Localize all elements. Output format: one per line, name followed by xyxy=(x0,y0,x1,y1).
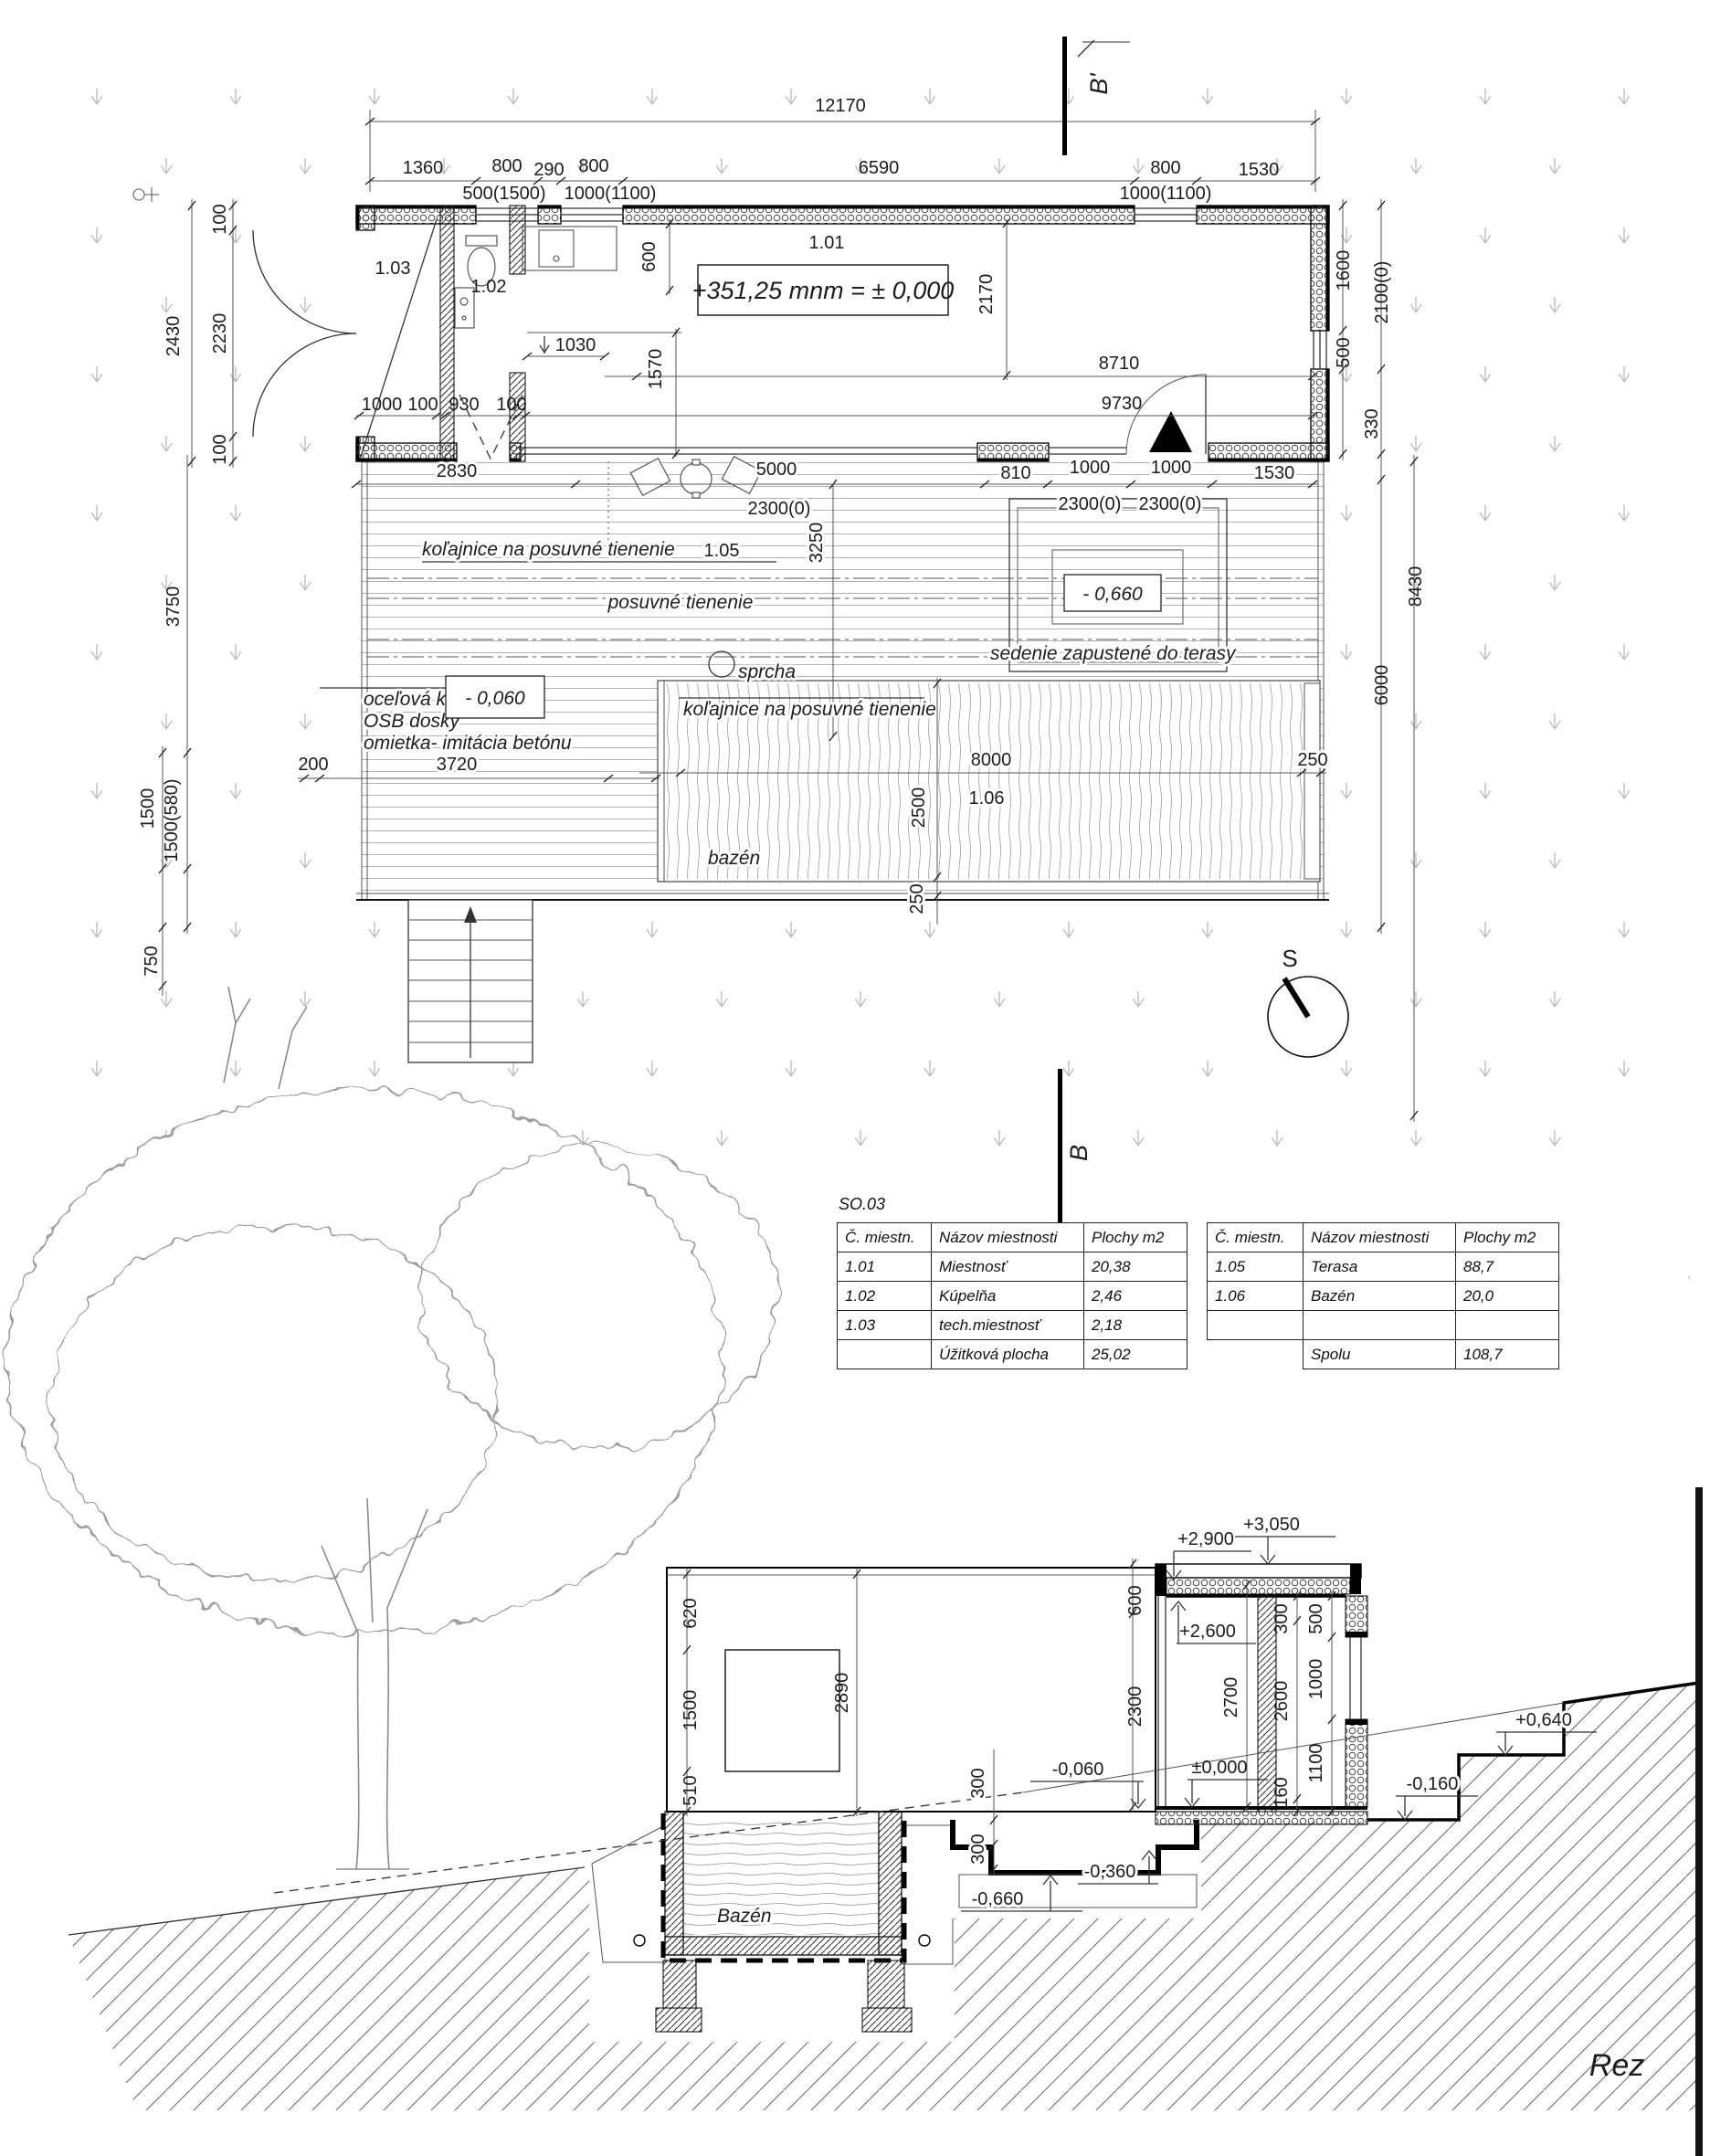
level-box-660: - 0,660 xyxy=(1064,575,1161,611)
dim-window3: 1000(1100) xyxy=(1120,184,1212,204)
lvl-m0360: -0,360 xyxy=(1084,1862,1136,1882)
lvl-2600: +2,600 xyxy=(1179,1622,1236,1642)
cut-label-bottom: B xyxy=(1065,1145,1092,1161)
dim-1000b: 1000 xyxy=(1151,458,1192,478)
room-table-left: Č. miestn. Názov miestnosti Plochy m2 1.… xyxy=(837,1222,1187,1369)
table-row: 1.06 Bazén 20,0 xyxy=(1208,1282,1559,1311)
dim-right-2100: 2100(0) xyxy=(1372,261,1392,324)
dim-left-1500-580: 1500(580) xyxy=(162,778,182,861)
compass-north-label: S xyxy=(1282,945,1297,972)
dim-100b: 100 xyxy=(496,395,526,415)
lvl-m0660: -0,660 xyxy=(972,1889,1024,1909)
dim-right-6000: 6000 xyxy=(1372,665,1392,706)
cell: tech.miestnosť xyxy=(932,1311,1084,1340)
dim-seg6: 800 xyxy=(1150,158,1180,178)
dim-left-2430: 2430 xyxy=(164,316,184,357)
dim-seg1: 1360 xyxy=(403,158,444,178)
sdim-1100: 1100 xyxy=(1306,1743,1326,1782)
dim-left-1500: 1500 xyxy=(138,788,158,830)
cell-total-value: 108,7 xyxy=(1456,1340,1559,1369)
dim-200: 200 xyxy=(298,755,328,775)
cell: 2,18 xyxy=(1084,1311,1187,1340)
architectural-drawing-sheet: 12170 1360 800 290 800 6590 800 1530 500… xyxy=(0,0,1710,2156)
rail-label-2: koľajnice na posuvné tienenie xyxy=(683,699,936,720)
cell: Bazén xyxy=(1304,1282,1456,1311)
cell xyxy=(1208,1311,1304,1340)
cell: Miestnosť xyxy=(932,1252,1084,1282)
table-row-total: Spolu 108,7 xyxy=(1208,1340,1559,1369)
lvl-3050: +3,050 xyxy=(1243,1515,1300,1535)
lvl-m0160: -0,160 xyxy=(1407,1774,1459,1794)
partition-103-102 xyxy=(440,206,454,461)
rail-label-1: koľajnice na posuvné tienenie xyxy=(422,539,675,560)
cell: 1.02 xyxy=(838,1282,932,1311)
table-row: 1.01 Miestnosť 20,38 xyxy=(838,1252,1187,1282)
room-101-label: 1.01 xyxy=(809,233,845,253)
room-105-label: 1.05 xyxy=(704,541,740,561)
sdim-2890: 2890 xyxy=(832,1673,852,1714)
grass-field-right xyxy=(1553,1215,1690,1334)
seating-label: sedenie zapustené do terasy xyxy=(990,643,1237,664)
sdim-2600: 2600 xyxy=(1272,1681,1292,1722)
tree-canopy-fill xyxy=(7,1089,776,1633)
table-row: 1.03 tech.miestnosť 2,18 xyxy=(838,1311,1187,1340)
pool-section: Bazén xyxy=(589,1812,955,2042)
cell xyxy=(1304,1311,1456,1340)
cell xyxy=(838,1340,932,1369)
sdim-1000: 1000 xyxy=(1306,1659,1326,1700)
cell: 1.06 xyxy=(1208,1282,1304,1311)
dim-left-100t: 100 xyxy=(210,204,230,234)
dim-1000a: 1000 xyxy=(1070,458,1111,478)
cell: Úžitková plocha xyxy=(932,1340,1084,1369)
sdim-300a: 300 xyxy=(1272,1603,1292,1633)
dim-3250: 3250 xyxy=(807,523,827,564)
col-header: Č. miestn. xyxy=(838,1223,932,1252)
dim-3720: 3720 xyxy=(437,755,478,775)
cell: 1.05 xyxy=(1208,1252,1304,1282)
dim-100a: 100 xyxy=(407,395,438,415)
dim-9730: 9730 xyxy=(1102,394,1143,414)
dim-2170: 2170 xyxy=(976,274,997,315)
cell-total-label: Spolu xyxy=(1304,1340,1456,1369)
cell: 88,7 xyxy=(1456,1252,1559,1282)
sdim-160: 160 xyxy=(1272,1777,1292,1807)
sdim-500: 500 xyxy=(1306,1603,1326,1633)
lvl-m0060: -0,060 xyxy=(1052,1760,1104,1780)
table-row: 1.05 Terasa 88,7 xyxy=(1208,1252,1559,1282)
table-row xyxy=(1208,1311,1559,1340)
col-header: Názov miestnosti xyxy=(1304,1223,1456,1252)
stairs xyxy=(408,900,533,1062)
sdim-300c: 300 xyxy=(968,1834,988,1864)
dim-2300b: 2300(0) xyxy=(1059,494,1122,514)
dim-seg5: 6590 xyxy=(859,158,900,178)
room-103-label: 1.03 xyxy=(375,259,411,279)
shower-label: sprcha xyxy=(738,661,796,682)
cell: 2,46 xyxy=(1084,1282,1187,1311)
cell-empty xyxy=(1208,1340,1304,1369)
level-box-060: - 0,060 xyxy=(446,676,544,718)
sdim-510: 510 xyxy=(681,1775,701,1805)
dim-seg7: 1530 xyxy=(1239,160,1280,180)
drawing-canvas: 12170 1360 800 290 800 6590 800 1530 500… xyxy=(0,0,1710,2156)
col-header: Plochy m2 xyxy=(1456,1223,1559,1252)
table-row: 1.02 Kúpelňa 2,46 xyxy=(838,1282,1187,1311)
dim-250-right: 250 xyxy=(1297,750,1327,770)
dim-window2: 1000(1100) xyxy=(565,184,657,204)
dim-left-3750: 3750 xyxy=(164,587,184,628)
dim-2500: 2500 xyxy=(909,787,929,829)
dim-right-330: 330 xyxy=(1362,408,1382,439)
cell: 1.03 xyxy=(838,1311,932,1340)
dim-seg2: 800 xyxy=(491,156,522,176)
dim-left-750: 750 xyxy=(142,946,162,976)
table-header-row: Č. miestn. Názov miestnosti Plochy m2 xyxy=(1208,1223,1559,1252)
dim-2300a: 2300(0) xyxy=(748,499,811,519)
sdim-300b: 300 xyxy=(968,1768,988,1798)
cell xyxy=(1456,1311,1559,1340)
cut-label-top: B' xyxy=(1085,73,1113,95)
table-title: SO.03 xyxy=(839,1195,885,1214)
dim-right-500: 500 xyxy=(1334,337,1354,367)
sheet-frame-edge xyxy=(1695,1487,1703,2156)
pool-label: bazén xyxy=(708,848,760,869)
table-row: Úžitková plocha 25,02 xyxy=(838,1340,1187,1369)
lvl-2900: +2,900 xyxy=(1177,1529,1234,1549)
dim-250-bottom: 250 xyxy=(907,883,927,914)
cell: Terasa xyxy=(1304,1252,1456,1282)
sdim-2300: 2300 xyxy=(1125,1686,1145,1728)
cell: 1.01 xyxy=(838,1252,932,1282)
lvl-0000: ±0,000 xyxy=(1191,1758,1247,1778)
dim-right-1600: 1600 xyxy=(1334,250,1354,291)
shading-label: posuvné tienenie xyxy=(607,592,754,613)
dim-2830: 2830 xyxy=(437,461,478,481)
section-title: Rez xyxy=(1589,2048,1644,2083)
dim-2300c: 2300(0) xyxy=(1139,494,1202,514)
building-section xyxy=(1156,1564,1367,1824)
sdim-1500: 1500 xyxy=(681,1690,701,1731)
dim-right-8430: 8430 xyxy=(1406,566,1426,608)
cell: Kúpelňa xyxy=(932,1282,1084,1311)
room-102-label: 1.02 xyxy=(471,277,507,297)
dim-1000: 1000 xyxy=(362,395,403,415)
dim-5000: 5000 xyxy=(756,460,797,480)
dim-left-100b: 100 xyxy=(210,434,230,464)
sdim-2700: 2700 xyxy=(1221,1677,1241,1718)
dim-8710: 8710 xyxy=(1099,354,1140,374)
table-header-row: Č. miestn. Názov miestnosti Plochy m2 xyxy=(838,1223,1187,1252)
svg-text:- 0,660: - 0,660 xyxy=(1082,584,1143,605)
pool-section-label: Bazén xyxy=(717,1906,772,1927)
dim-seg4: 800 xyxy=(578,156,608,176)
sdim-620: 620 xyxy=(681,1598,701,1628)
dim-seg3: 290 xyxy=(533,160,564,180)
svg-text:- 0,060: - 0,060 xyxy=(465,688,525,709)
col-header: Plochy m2 xyxy=(1084,1223,1187,1252)
dim-8000: 8000 xyxy=(971,750,1012,770)
dim-930: 930 xyxy=(449,395,479,415)
room-table-right: Č. miestn. Názov miestnosti Plochy m2 1.… xyxy=(1207,1222,1559,1369)
dim-1030: 1030 xyxy=(555,335,596,355)
level-note: +351,25 mnm = ± 0,000 xyxy=(692,265,955,315)
dim-1530: 1530 xyxy=(1254,463,1295,483)
dim-overall: 12170 xyxy=(815,96,866,116)
cell: 20,0 xyxy=(1456,1282,1559,1311)
col-header: Názov miestnosti xyxy=(932,1223,1084,1252)
dim-810: 810 xyxy=(1000,463,1030,483)
col-header: Č. miestn. xyxy=(1208,1223,1304,1252)
svg-text:+351,25 mnm = ± 0,000: +351,25 mnm = ± 0,000 xyxy=(692,277,955,304)
dim-left-2230: 2230 xyxy=(210,313,230,354)
material-3: omietka- imitácia betónu xyxy=(364,733,572,754)
cell: 25,02 xyxy=(1084,1340,1187,1369)
dim-1570: 1570 xyxy=(646,349,666,390)
sdim-600: 600 xyxy=(1125,1585,1145,1615)
lvl-p0640: +0,640 xyxy=(1515,1710,1572,1730)
room-106-label: 1.06 xyxy=(969,788,1005,808)
cell: 20,38 xyxy=(1084,1252,1187,1282)
dim-window1: 500(1500) xyxy=(462,184,545,204)
dim-600: 600 xyxy=(639,241,660,271)
